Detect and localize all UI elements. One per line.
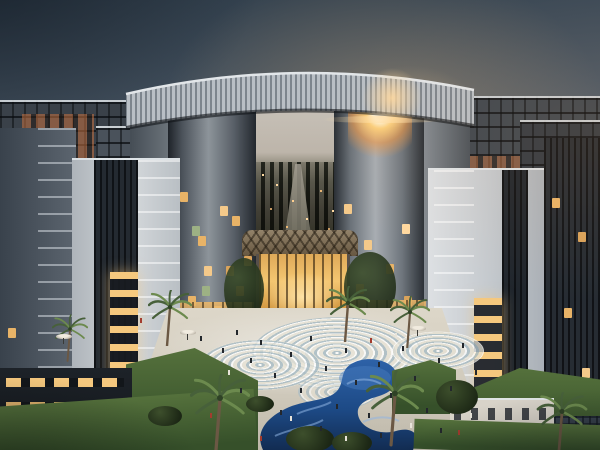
lit-windows — [344, 204, 352, 214]
palm-tree — [536, 392, 588, 450]
cafe-umbrella — [56, 334, 72, 339]
lit-windows — [552, 198, 560, 208]
architectural-rendering — [0, 0, 600, 450]
lit-windows — [8, 328, 16, 338]
crown-ring — [0, 0, 600, 160]
lit-balcony-row — [6, 378, 124, 387]
lit-windows-green — [192, 226, 200, 236]
crown-sun-hotspot — [362, 68, 422, 128]
city-lights — [262, 174, 264, 176]
lit-windows — [180, 192, 188, 202]
pedestrians-red — [140, 318, 142, 323]
atrium-canopy — [242, 230, 358, 256]
plaza-people — [140, 318, 510, 448]
